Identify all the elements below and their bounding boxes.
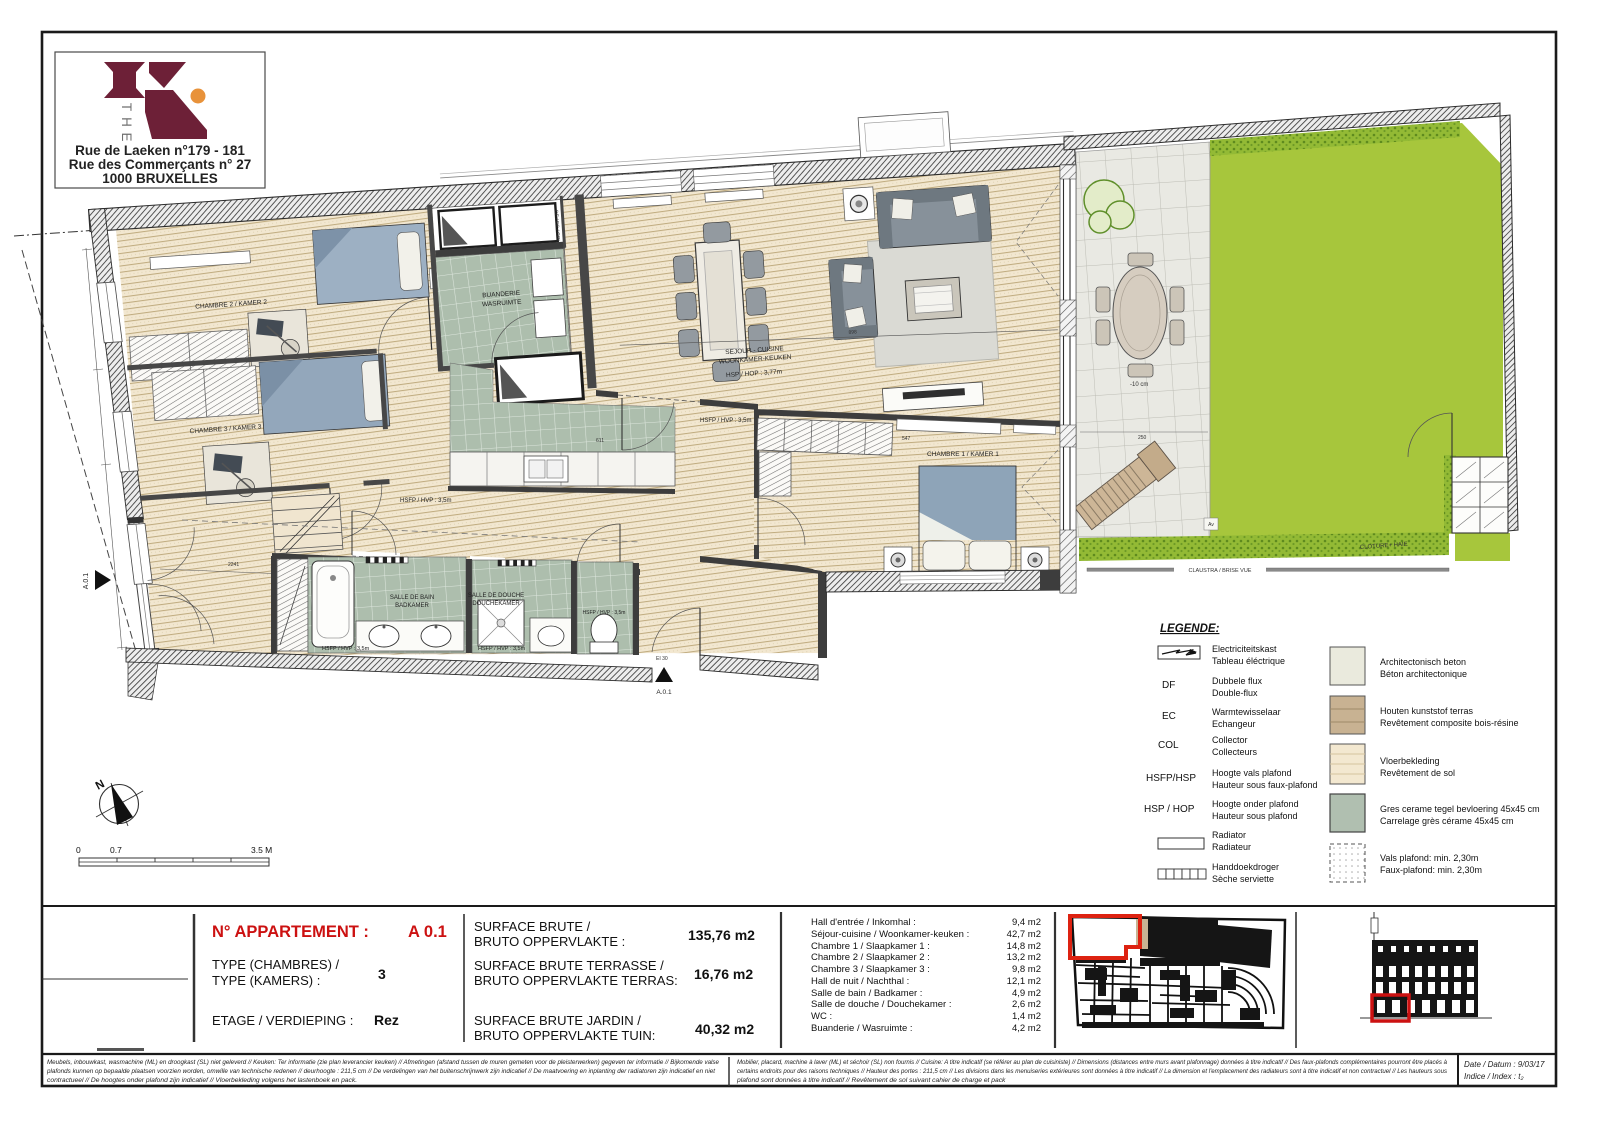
svg-text:Faux-plafond: min. 2,30m: Faux-plafond: min. 2,30m [1380,865,1482,875]
svg-text:plafond sont données à titre i: plafond sont données à titre indicatif /… [736,1077,1006,1084]
svg-text:2,6 m2: 2,6 m2 [1012,999,1041,1010]
svg-text:3.5 M: 3.5 M [251,845,272,855]
svg-text:Rue des Commerçants n° 27: Rue des Commerçants n° 27 [69,157,251,172]
svg-text:Hauteur sous plafond: Hauteur sous plafond [1212,811,1298,821]
svg-text:Rue de Laeken n°179 - 181: Rue de Laeken n°179 - 181 [75,143,245,158]
svg-text:Date / Datum : 9/03/17: Date / Datum : 9/03/17 [1464,1060,1545,1069]
svg-text:Séjour-cuisine / Woonkamer-keu: Séjour-cuisine / Woonkamer-keuken : [811,929,969,940]
svg-text:Rez: Rez [374,1012,399,1028]
svg-text:SURFACE BRUTE JARDIN /: SURFACE BRUTE JARDIN / [474,1013,641,1028]
svg-text:SURFACE BRUTE TERRASSE /: SURFACE BRUTE TERRASSE / [474,958,664,973]
svg-text:Hall de nuit / Nachthal :: Hall de nuit / Nachthal : [811,976,909,987]
svg-text:Hauteur sous faux-plafond: Hauteur sous faux-plafond [1212,780,1318,790]
svg-text:CLAUSTRA / BRISE VUE: CLAUSTRA / BRISE VUE [1189,568,1252,574]
svg-text:Gres cerame tegel bevloering 4: Gres cerame tegel bevloering 45x45 cm [1380,804,1540,814]
svg-text:Radiator: Radiator [1212,830,1246,840]
svg-text:Architectonisch beton: Architectonisch beton [1380,657,1466,667]
svg-text:Sèche serviette: Sèche serviette [1212,874,1274,884]
svg-text:HSFP / HVP : 3,5m: HSFP / HVP : 3,5m [700,418,751,424]
svg-text:HSFP / HVP : 3,5m: HSFP / HVP : 3,5m [400,498,451,504]
svg-text:2241: 2241 [228,562,239,568]
svg-text:SALLE DE DOUCHE: SALLE DE DOUCHE [468,593,524,599]
svg-text:Hoogte vals plafond: Hoogte vals plafond [1212,768,1292,778]
svg-text:13,2 m2: 13,2 m2 [1007,952,1041,963]
svg-text:Salle de bain / Badkamer :: Salle de bain / Badkamer : [811,988,922,999]
svg-text:0.7: 0.7 [110,845,122,855]
svg-text:1000 BRUXELLES: 1000 BRUXELLES [102,171,218,186]
svg-text:LEGENDE:: LEGENDE: [1160,623,1220,635]
svg-text:Béton architectonique: Béton architectonique [1380,669,1467,679]
svg-text:Electriciteitskast: Electriciteitskast [1212,644,1277,654]
svg-text:Revêtement composite bois-rési: Revêtement composite bois-résine [1380,718,1519,728]
svg-text:14,8 m2: 14,8 m2 [1007,941,1041,952]
svg-text:9,8 m2: 9,8 m2 [1012,964,1041,975]
svg-text:CHAMBRE 1 / KAMER 1: CHAMBRE 1 / KAMER 1 [927,451,999,458]
svg-text:BRUTO OPPERVLAKTE TUIN:: BRUTO OPPERVLAKTE TUIN: [474,1028,655,1043]
svg-text:A.0.1: A.0.1 [83,573,90,589]
svg-text:Collecteurs: Collecteurs [1212,747,1258,757]
svg-text:T: T [119,103,134,111]
svg-text:Hall d'entrée / Inkomhal :: Hall d'entrée / Inkomhal : [811,917,916,928]
svg-text:SALLE DE BAIN: SALLE DE BAIN [390,595,434,601]
svg-text:Hoogte onder plafond: Hoogte onder plafond [1212,799,1299,809]
svg-text:42,7 m2: 42,7 m2 [1007,929,1041,940]
svg-text:A.0.1: A.0.1 [656,689,672,696]
svg-text:Mobilier, placard, machine à l: Mobilier, placard, machine à laver (ML) … [737,1059,1447,1066]
svg-text:E: E [119,132,134,141]
svg-text:plafonds kunnen op bepaalde pl: plafonds kunnen op bepaalde plaatsen voo… [46,1068,716,1075]
svg-text:4,2 m2: 4,2 m2 [1012,1023,1041,1034]
svg-text:TYPE (CHAMBRES) /: TYPE (CHAMBRES) / [212,957,340,972]
svg-text:135,76 m2: 135,76 m2 [688,927,755,943]
svg-text:HSFP / HVP : 3,5m: HSFP / HVP : 3,5m [322,646,370,652]
svg-text:40,32 m2: 40,32 m2 [695,1021,754,1037]
svg-text:DOUCHEKAMER: DOUCHEKAMER [472,601,520,607]
svg-text:Double-flux: Double-flux [1212,688,1258,698]
svg-text:Collector: Collector [1212,735,1248,745]
svg-text:ETAGE / VERDIEPING :: ETAGE / VERDIEPING : [212,1013,353,1028]
svg-text:Vals plafond: min. 2,30m: Vals plafond: min. 2,30m [1380,853,1478,863]
svg-text:Radiateur: Radiateur [1212,842,1251,852]
svg-text:Meubels, inbouwkast, wasmachin: Meubels, inbouwkast, wasmachine (ML) en … [47,1059,719,1066]
svg-text:0: 0 [76,845,81,855]
svg-text:Vloerbekleding: Vloerbekleding [1380,756,1440,766]
svg-text:HSP / HOP: HSP / HOP [1144,804,1195,815]
svg-text:Dubbele flux: Dubbele flux [1212,676,1263,686]
svg-text:Warmtewisselaar: Warmtewisselaar [1212,707,1281,717]
svg-text:Buanderie / Wasruimte :: Buanderie / Wasruimte : [811,1023,913,1034]
svg-text:Echangeur: Echangeur [1212,719,1256,729]
svg-text:4,9 m2: 4,9 m2 [1012,988,1041,999]
svg-text:9,4 m2: 9,4 m2 [1012,917,1041,928]
svg-text:250: 250 [1138,435,1147,441]
svg-text:SURFACE BRUTE /: SURFACE BRUTE / [474,919,591,934]
svg-text:1,4 m2: 1,4 m2 [1012,1011,1041,1022]
svg-text:Salle de douche / Douchekamer: Salle de douche / Douchekamer : [811,999,951,1010]
svg-text:BRUTO OPPERVLAKTE :: BRUTO OPPERVLAKTE : [474,934,625,949]
svg-text:HSFP / HVP : 3,5m: HSFP / HVP : 3,5m [478,646,526,652]
svg-text:EI 30: EI 30 [656,656,668,662]
svg-text:Houten kunststof terras: Houten kunststof terras [1380,706,1474,716]
svg-text:BADKAMER: BADKAMER [395,603,429,609]
svg-text:TYPE (KAMERS) :: TYPE (KAMERS) : [212,973,320,988]
svg-text:Chambre 1 / Slaapkamer 1 :: Chambre 1 / Slaapkamer 1 : [811,941,930,952]
svg-text:16,76 m2: 16,76 m2 [694,966,753,982]
svg-text:Tableau éléctrique: Tableau éléctrique [1212,656,1285,666]
svg-text:DF: DF [1162,680,1175,691]
svg-text:898: 898 [848,329,857,336]
svg-text:-10 cm: -10 cm [1130,382,1148,388]
svg-text:H: H [119,117,134,127]
svg-text:N° APPARTEMENT :: N° APPARTEMENT : [212,923,369,941]
svg-text:BRUTO OPPERVLAKTE TERRAS:: BRUTO OPPERVLAKTE TERRAS: [474,973,678,988]
svg-text:certains endroits pour des rai: certains endroits pour des raisons techn… [737,1068,1448,1075]
svg-text:3: 3 [378,966,386,982]
svg-text:Revêtement de sol: Revêtement de sol [1380,768,1455,778]
svg-text:611: 611 [596,438,604,444]
svg-text:Av: Av [1208,522,1214,528]
svg-text:Chambre 2 / Slaapkamer 2 :: Chambre 2 / Slaapkamer 2 : [811,952,930,963]
svg-text:HSFP / HVP : 3,5m: HSFP / HVP : 3,5m [583,610,626,616]
svg-text:Chambre 3 / Slaapkamer 3 :: Chambre 3 / Slaapkamer 3 : [811,964,930,975]
svg-text:EC: EC [1162,711,1176,722]
svg-text:Handdoekdroger: Handdoekdroger [1212,862,1279,872]
svg-text:WC :: WC : [811,1011,832,1022]
svg-text:A 0.1: A 0.1 [408,923,447,941]
svg-text:547: 547 [902,436,911,442]
svg-text:Carrelage grès cérame 45x45 cm: Carrelage grès cérame 45x45 cm [1380,816,1514,826]
svg-text:HSFP/HSP: HSFP/HSP [1146,773,1196,784]
svg-text:12,1 m2: 12,1 m2 [1007,976,1041,987]
svg-text:contractueel // De hoogtes ond: contractueel // De hoogtes onder plafond… [47,1077,357,1084]
svg-text:COL: COL [1158,740,1179,751]
svg-text:Indice / Index : t₂: Indice / Index : t₂ [1464,1072,1524,1081]
